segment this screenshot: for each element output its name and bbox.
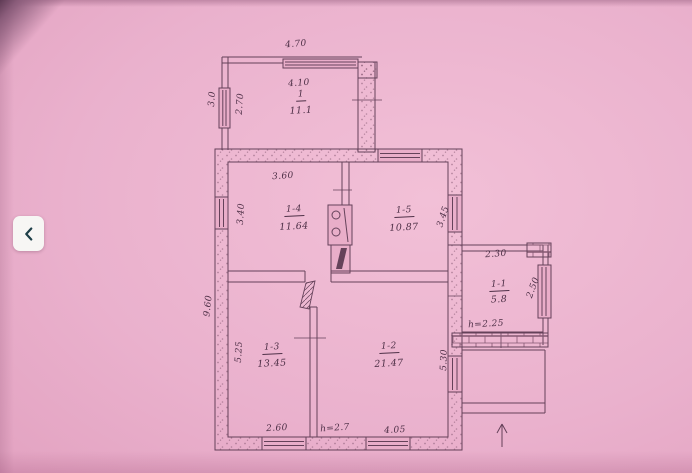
floor-plan-photo: 4.704.103.02.70111.13.603.401-411.641-51… xyxy=(0,0,692,473)
veranda-window-left xyxy=(219,88,230,128)
interior-door-leaf xyxy=(300,281,315,309)
dimension-ticks xyxy=(294,100,501,348)
entrance-arrow xyxy=(497,424,507,447)
chevron-left-icon xyxy=(18,223,40,245)
partition-room4-room5 xyxy=(342,162,349,205)
stove-block xyxy=(328,205,352,273)
window-bottom-wall-left xyxy=(262,437,306,450)
partition-room3-room2 xyxy=(310,307,317,437)
window-right-wall-lower xyxy=(448,356,462,392)
main-building-walls xyxy=(215,149,462,450)
veranda-window-top xyxy=(283,59,358,68)
window-left-wall xyxy=(215,197,228,229)
window-right-wall-upper xyxy=(448,195,462,232)
annex-walls xyxy=(448,243,551,347)
floor-plan-drawing xyxy=(0,0,692,473)
window-bottom-wall-right xyxy=(366,437,410,450)
veranda-walls xyxy=(222,57,377,152)
annex-window-right xyxy=(538,265,551,318)
window-top-wall xyxy=(378,149,422,162)
back-button[interactable] xyxy=(13,216,44,251)
porch-steps xyxy=(462,350,545,413)
